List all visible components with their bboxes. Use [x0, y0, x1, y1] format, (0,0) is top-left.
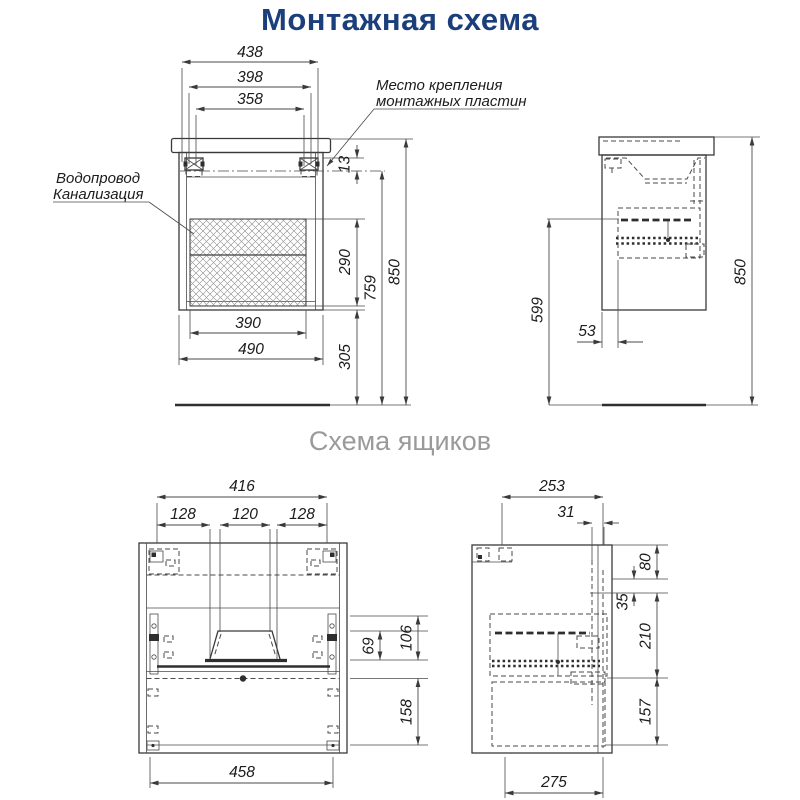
dim-106: 106 [399, 625, 416, 651]
drawer-unit-side [472, 545, 612, 753]
dim-69: 69 [361, 637, 378, 655]
dim-13: 13 [337, 156, 354, 174]
dim-599: 599 [530, 297, 547, 323]
dim-53: 53 [578, 323, 596, 340]
plumbing-label-2: Канализация [53, 186, 144, 203]
lower-drawer-hidden [492, 682, 605, 746]
drawers-front-view: 416 128 120 128 69 106 158 458 [139, 478, 428, 788]
dim-458: 458 [229, 764, 255, 781]
siphon-hidden [686, 244, 704, 257]
drawer-slide-left [149, 614, 173, 674]
plumbing-leader [149, 202, 194, 234]
dim-210: 210 [638, 623, 655, 650]
dim-128-right: 128 [289, 506, 315, 523]
dim-305: 305 [337, 344, 354, 370]
drawers-side-view: 253 31 80 35 210 157 275 [472, 478, 668, 798]
dim-850: 850 [387, 259, 404, 285]
mounting-plates-label-1: Место крепления [376, 77, 502, 94]
drawer-slide-right [313, 614, 337, 674]
drain-pipe-hidden [690, 160, 704, 204]
technical-drawing-canvas: 438 398 358 13 290 305 759 850 [0, 0, 800, 800]
mounting-front-view: 438 398 358 13 290 305 759 850 [53, 44, 526, 405]
mounting-plates-label-2: монтажных пластин [376, 93, 526, 110]
mounting-side-view: 599 53 850 [530, 137, 761, 405]
dim-35: 35 [615, 593, 632, 611]
front-panel-hidden [592, 560, 603, 748]
overflow-hidden [605, 159, 621, 168]
dim-398: 398 [237, 69, 263, 86]
dim-275: 275 [540, 774, 567, 791]
plumbing-annotation: Водопровод Канализация [53, 170, 194, 234]
dim-157: 157 [638, 698, 655, 725]
dim-358: 358 [237, 91, 263, 108]
plumbing-zone-hatch [190, 219, 306, 306]
dim-80: 80 [638, 553, 655, 571]
center-mark [240, 675, 246, 681]
countertop-front [172, 139, 331, 153]
mounting-plate-right [299, 158, 320, 177]
dim-31: 31 [557, 504, 574, 521]
dim-490: 490 [238, 341, 264, 358]
dim-438: 438 [237, 44, 263, 61]
plumbing-label-1: Водопровод [56, 170, 140, 187]
dim-120: 120 [232, 506, 258, 523]
dim-416: 416 [229, 478, 255, 495]
countertop-side [599, 137, 714, 155]
drawer-box-hidden [618, 208, 700, 258]
dim-759: 759 [363, 275, 380, 301]
dim-158: 158 [399, 699, 416, 725]
dim-390: 390 [235, 315, 261, 332]
installation-scheme-page: Монтажная схема Схема ящиков [0, 0, 800, 800]
dim-253: 253 [538, 478, 565, 495]
dim-850-side: 850 [733, 259, 750, 285]
dim-290: 290 [337, 249, 354, 276]
dim-128-left: 128 [170, 506, 196, 523]
